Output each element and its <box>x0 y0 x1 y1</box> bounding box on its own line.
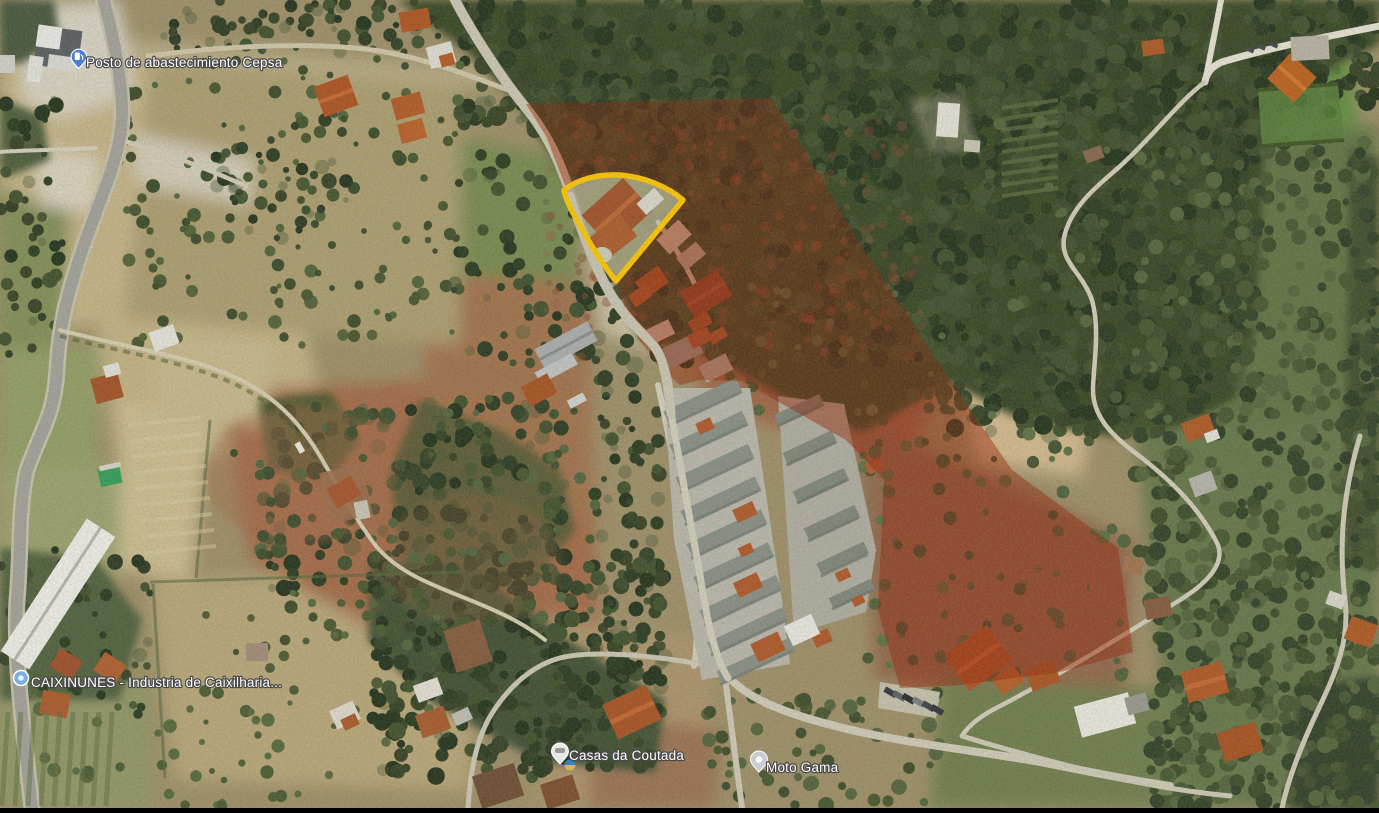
svg-text:Moto Gama: Moto Gama <box>766 760 839 775</box>
svg-text:CAIXINUNES - Industria de Cai: CAIXINUNES - Industria de Caixilharia... <box>31 675 282 690</box>
svg-text:Posto de abastecimiento Cepsa: Posto de abastecimiento Cepsa <box>86 55 283 70</box>
svg-text:Casas da Coutada: Casas da Coutada <box>569 748 684 763</box>
